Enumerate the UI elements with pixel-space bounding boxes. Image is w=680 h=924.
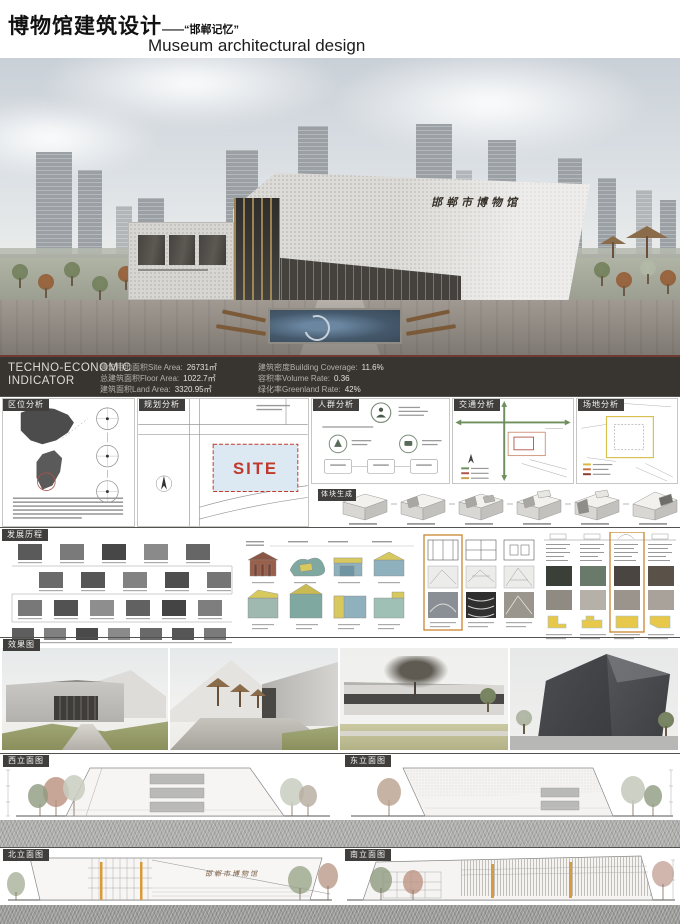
elevation-north-drawing: 邯郸市博物馆 [0, 850, 339, 905]
section-label-elev-north: 北立面图 [3, 849, 49, 861]
tree-trunk [414, 682, 416, 698]
stat-volume-rate: 容积率Volume Rate:0.36 [258, 373, 384, 384]
elevation-north: 邯郸市博物馆 [0, 850, 339, 905]
history-comparison [422, 532, 678, 644]
lawn [340, 724, 508, 750]
museum-sign: 邯郸市博物馆 [431, 194, 521, 210]
tree [92, 276, 108, 300]
pavilion-pole [646, 236, 648, 258]
moon-motif [300, 311, 335, 346]
section-rule [0, 527, 680, 528]
section-rule [0, 753, 680, 754]
museum-right-wing: 邯郸市博物馆 [233, 170, 590, 300]
traffic-analysis-graphic [453, 399, 573, 483]
history-precedents-graphic [242, 536, 420, 644]
tree [616, 272, 632, 296]
facade-artworks [138, 235, 226, 265]
museum-entrance-glass [234, 198, 280, 300]
elevation-south-drawing [341, 850, 680, 905]
elevation-ground-strip [0, 820, 680, 847]
pavilion-pole [257, 695, 259, 708]
site-analysis-graphic [577, 399, 677, 483]
section-label-elev-south: 南立面图 [345, 849, 391, 861]
stat-coverage: 建筑密度Building Coverage:11.6% [258, 362, 384, 373]
page-title-zh: 博物馆建筑设计 [8, 15, 162, 38]
location-analysis-graphic [3, 399, 134, 526]
facade-caption-line [138, 269, 208, 271]
stat-greenland-rate: 绿化率Greenland Rate:42% [258, 384, 384, 395]
history-comparison-graphic [422, 532, 678, 644]
page-title-dash: —— [162, 24, 184, 36]
elevation-east-drawing [341, 758, 680, 820]
ground [510, 736, 678, 750]
section-label-crowd: 人群分析 [313, 399, 359, 411]
tree [640, 260, 656, 284]
stat-floor-area: 总建筑面积Floor Area:1022.7㎡ [100, 373, 217, 384]
stat-site-area: 建筑用地面积Site Area:26731㎡ [100, 362, 217, 373]
rendering-thumb-4 [510, 648, 678, 750]
pavilion-pole [239, 691, 241, 707]
render-entrance [54, 696, 98, 720]
planning-analysis-graphic: SITE [138, 399, 308, 526]
poster-board: 博物馆建筑设计——“邯郸记忆” Museum architectural des… [0, 0, 680, 924]
rendering-thumb-1 [2, 648, 168, 750]
elevation-sign: 邯郸市博物馆 [205, 870, 259, 878]
indicator-column-1: 建筑用地面积Site Area:26731㎡ 总建筑面积Floor Area:1… [100, 362, 217, 395]
stat-land-area: 建筑面积Land Area:3320.95㎡ [100, 384, 217, 395]
facade-artwork [199, 235, 226, 265]
section-label-elev-west: 西立面图 [3, 755, 49, 767]
section-label-location: 区位分析 [3, 399, 49, 411]
tree [12, 264, 28, 288]
section-label-traffic: 交通分析 [454, 399, 500, 411]
tree [480, 688, 496, 712]
hero-rendering: 邯郸市博物馆 [0, 58, 680, 355]
tree [384, 656, 448, 688]
page-title-theme: “邯郸记忆” [184, 24, 239, 36]
facade-artwork [169, 235, 196, 265]
pavilion-pole [612, 242, 614, 258]
section-label-elev-east: 东立面图 [345, 755, 391, 767]
section-label-history: 发展历程 [2, 529, 48, 541]
techno-economic-banner: TECHNO-ECONOMIC INDICATOR 建筑用地面积Site Are… [0, 355, 680, 396]
section-label-planning: 规划分析 [139, 399, 185, 411]
skyline-tower [78, 170, 102, 255]
panel-location-analysis [2, 398, 135, 527]
museum-left-block [128, 222, 234, 300]
history-timeline [4, 536, 240, 644]
site-label: SITE [233, 459, 278, 478]
panel-planning-analysis: SITE [137, 398, 309, 527]
crowd-analysis-graphic [312, 399, 449, 483]
skyline-tower [660, 200, 676, 255]
skyline-tower [36, 152, 72, 255]
skyline-tower [636, 190, 652, 255]
tree [594, 262, 610, 286]
elevation-west [0, 758, 339, 820]
massing-sequence-graphic [311, 486, 678, 527]
tree [38, 274, 54, 298]
elevation-south [341, 850, 680, 905]
section-label-massing: 体块生成 [318, 489, 356, 501]
section-label-site: 场地分析 [578, 399, 624, 411]
facade-artwork [138, 235, 165, 265]
section-rule [0, 396, 680, 397]
section-label-renderings: 效果图 [3, 639, 40, 651]
tree [658, 712, 674, 736]
elevation-east [341, 758, 680, 820]
massing-strip [311, 486, 678, 527]
tree [64, 262, 80, 286]
rendering-thumb-3 [340, 648, 508, 750]
indicator-column-2: 建筑密度Building Coverage:11.6% 容积率Volume Ra… [258, 362, 384, 395]
rendering-thumb-2 [170, 648, 338, 750]
elevation-west-drawing [0, 758, 339, 820]
page-subtitle-en: Museum architectural design [148, 36, 365, 56]
history-timeline-graphic [4, 536, 240, 644]
section-rule [0, 637, 680, 638]
section-rule [0, 847, 680, 848]
history-precedents [242, 536, 420, 644]
reflecting-pool [268, 308, 402, 344]
tree [516, 710, 532, 734]
tree [660, 270, 676, 294]
pavilion-pole [217, 686, 219, 706]
walk-path [340, 731, 508, 736]
elevation-ground-strip [0, 905, 680, 924]
